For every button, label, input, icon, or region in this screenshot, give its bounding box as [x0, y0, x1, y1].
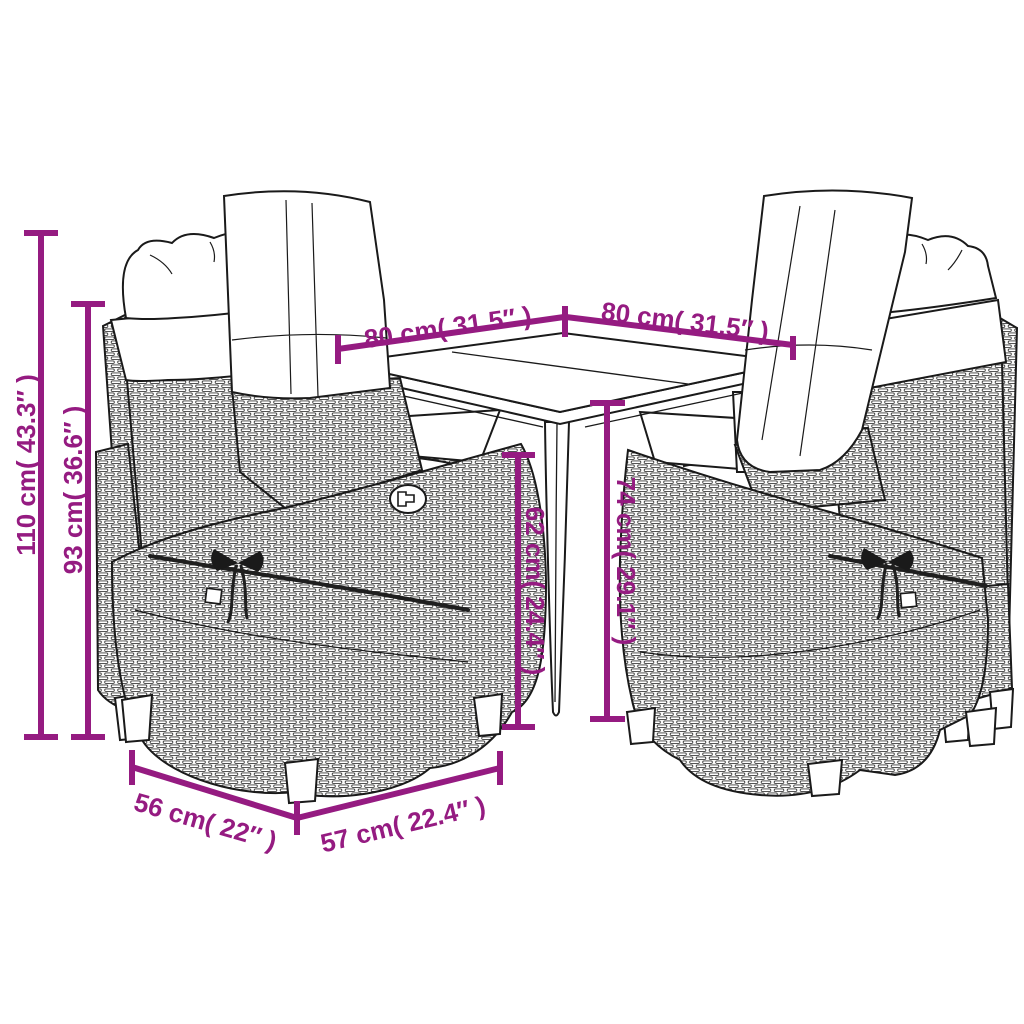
product-dimension-diagram: 110 cm( 43.3″ ) 93 cm( 36.6″ ) 80 cm( 31…	[0, 0, 1024, 1024]
chair-leg	[474, 694, 502, 736]
dim-label: 57 cm( 22.4″ )	[317, 790, 488, 859]
dim-label: 80 cm( 31.5″ )	[600, 296, 771, 346]
dim-label: 110 cm( 43.3″ )	[11, 374, 41, 556]
dim-label: 56 cm( 22″ )	[131, 787, 280, 856]
chair-leg	[808, 760, 842, 796]
strap-slot	[900, 592, 916, 607]
dim-label: 93 cm( 36.6″ )	[58, 406, 88, 575]
chair-back-cushion	[224, 191, 390, 398]
strap-slot	[205, 588, 222, 604]
dim-chair-total-height: 110 cm( 43.3″ )	[11, 233, 58, 737]
dim-label: 74 cm( 29.1″ )	[611, 477, 641, 646]
chair-leg	[285, 759, 318, 803]
chair-leg	[966, 708, 996, 746]
dim-label: 62 cm( 24.4″ )	[520, 507, 550, 676]
recline-knob	[390, 485, 426, 513]
chair-leg	[627, 708, 655, 744]
furniture-illustration: 110 cm( 43.3″ ) 93 cm( 36.6″ ) 80 cm( 31…	[0, 0, 1024, 1024]
chair-leg	[122, 695, 152, 742]
